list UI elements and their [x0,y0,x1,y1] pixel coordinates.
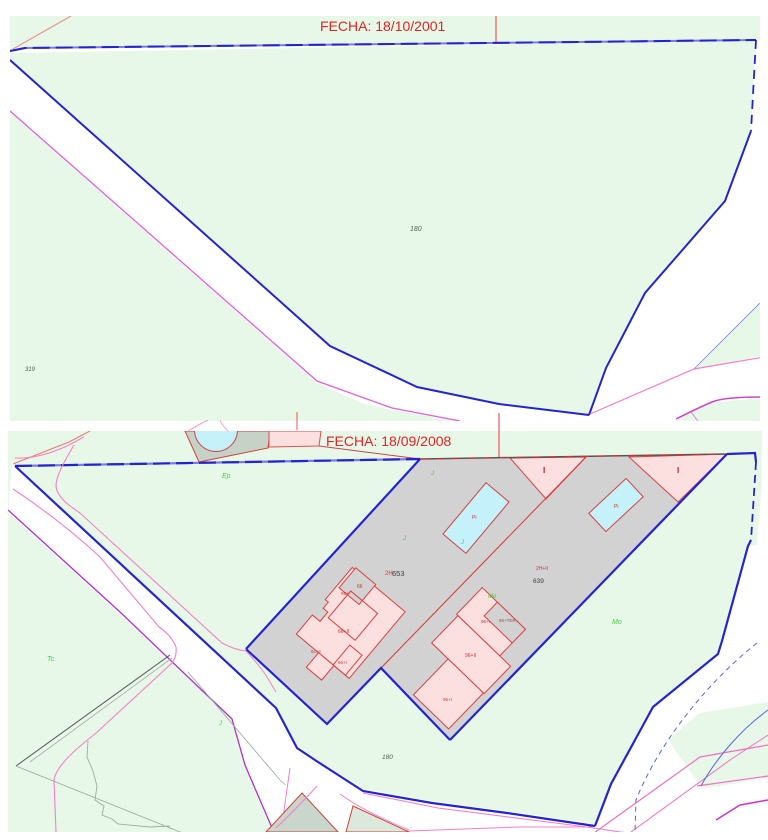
svg-text:Ep: Ep [222,473,231,480]
svg-text:Mo: Mo [488,594,497,600]
svg-text:319: 319 [25,367,36,373]
svg-text:FECHA: 18/10/2001: FECHA: 18/10/2001 [320,18,446,34]
svg-text:66: 66 [357,584,363,590]
svg-text:Tc: Tc [47,656,55,663]
svg-text:96+TER: 96+TER [499,618,516,623]
svg-text:96+I: 96+I [481,619,490,624]
svg-text:Mo: Mo [612,619,622,626]
svg-text:2H: 2H [385,571,393,577]
svg-text:180: 180 [382,754,393,761]
svg-text:Pi: Pi [472,515,476,521]
svg-text:2H+II: 2H+II [536,566,548,572]
svg-text:96+I: 96+I [443,697,452,702]
svg-text:Pi: Pi [614,504,618,510]
svg-text:653: 653 [392,569,405,578]
svg-text:9B+: 9B+ [341,591,350,596]
svg-text:66+II: 66+II [338,629,349,635]
svg-text:180: 180 [410,226,422,233]
svg-text:96+II: 96+II [465,653,476,659]
svg-text:639: 639 [533,578,544,585]
svg-text:66+I: 66+I [338,660,347,665]
svg-text:6C+I: 6C+I [311,649,321,654]
svg-text:FECHA: 18/09/2008: FECHA: 18/09/2008 [326,433,452,449]
